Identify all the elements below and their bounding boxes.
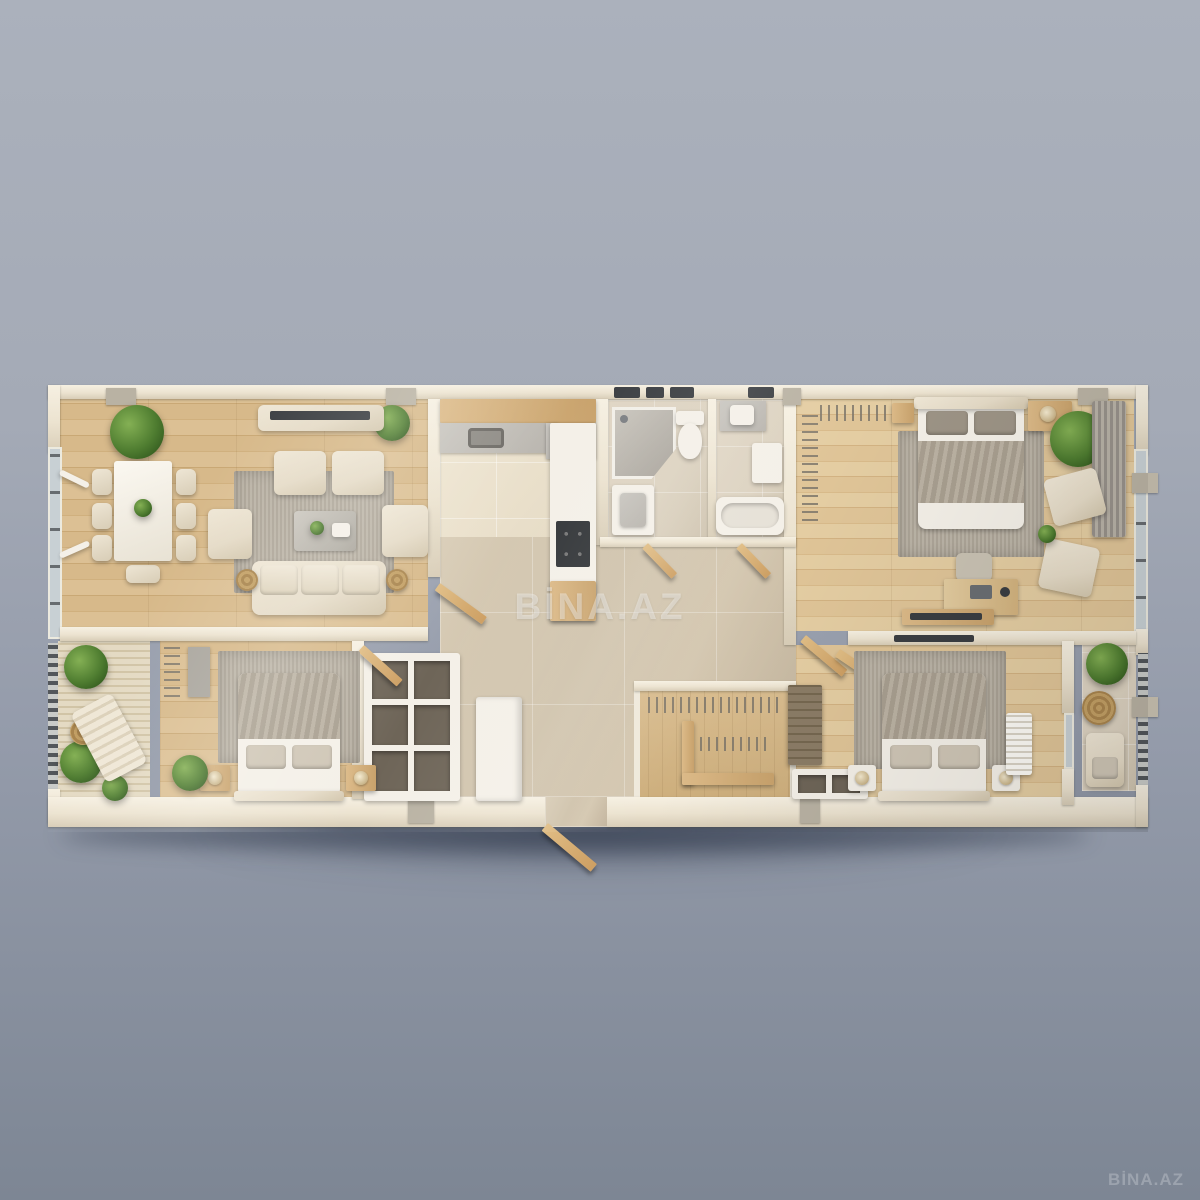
bed-pillow	[974, 411, 1016, 435]
shelf-cubby	[372, 751, 408, 791]
toilet-bowl	[678, 423, 702, 459]
hall-wardrobe	[476, 697, 522, 801]
balcony-plant	[1086, 643, 1128, 685]
wc-window	[748, 387, 774, 398]
tv-screen	[910, 613, 982, 620]
tv-screen	[270, 411, 370, 420]
balcony-round-table	[1082, 691, 1116, 725]
bedside-lamp	[855, 771, 869, 785]
wall-bedrooms-right	[848, 631, 1136, 645]
bed-pillow	[926, 411, 968, 435]
wall-balcony-divider-lower	[1062, 769, 1074, 805]
coffee-table-plant	[310, 521, 324, 535]
sofa-cushion	[301, 565, 339, 595]
armchair	[274, 451, 326, 495]
dining-chair	[92, 535, 112, 561]
nightstand	[892, 403, 914, 423]
shower-head	[620, 415, 628, 423]
closet-unit-horizontal	[682, 773, 774, 785]
bathroom-window	[670, 387, 694, 398]
outer-wall-right-lower	[1136, 785, 1148, 827]
bathroom-window	[646, 387, 664, 398]
shelf-cubby	[798, 775, 826, 793]
sofa-cushion	[260, 565, 298, 595]
dining-chair	[92, 469, 112, 495]
desk-chair	[956, 553, 992, 581]
entrance-threshold	[545, 797, 607, 827]
bed-blanket	[882, 673, 986, 739]
armchair	[1037, 538, 1100, 598]
dining-chair	[92, 503, 112, 529]
bed-headboard	[878, 791, 990, 801]
balcony-left-railing	[48, 643, 58, 793]
pilaster-stub	[408, 799, 434, 823]
mirror-frame	[188, 647, 210, 697]
laptop	[970, 585, 992, 599]
potted-plant	[110, 405, 164, 459]
kitchen-sink	[468, 428, 504, 448]
armchair	[332, 451, 384, 495]
side-table	[236, 569, 258, 591]
cooktop	[556, 521, 590, 567]
tall-wardrobe	[788, 685, 822, 765]
dining-chair	[176, 535, 196, 561]
watermark-corner: BİNA.AZ	[1108, 1170, 1184, 1190]
balcony-door-glass	[1064, 713, 1074, 769]
wall-balcony-divider-upper	[1062, 641, 1074, 713]
pilaster-stub	[1132, 697, 1158, 717]
chair-cushion	[1092, 757, 1118, 779]
clothes-rack	[802, 409, 818, 521]
pilaster-stub	[106, 388, 136, 405]
outer-wall-left-upper	[48, 385, 60, 453]
wall-kitchen-bathroom	[596, 399, 608, 545]
floorplan-render-scene: BİNA.AZ BİNA.AZ	[0, 0, 1200, 1200]
pilaster-stub	[800, 799, 820, 823]
bedside-lamp	[1040, 406, 1056, 422]
wall-living-kitchen	[428, 399, 440, 577]
window-wall-left	[48, 447, 62, 639]
radiator-panel	[1006, 713, 1032, 775]
pilaster-stub	[386, 388, 416, 405]
bathroom-window	[614, 387, 640, 398]
shelf-cubby	[414, 751, 450, 791]
pilaster-stub	[783, 388, 801, 405]
dining-chair	[126, 565, 160, 583]
shelf-cubby	[372, 705, 408, 745]
wc-washbasin	[730, 405, 754, 425]
balcony-plant	[64, 645, 108, 689]
kitchen-upper-cabinets	[440, 399, 596, 423]
wc-cabinet	[752, 443, 782, 483]
desk-lamp	[1000, 587, 1010, 597]
small-plant	[1038, 525, 1056, 543]
bed-pillow	[292, 745, 332, 769]
window-curtain	[1092, 401, 1126, 537]
wall-wc-bedroom	[784, 399, 796, 645]
closet-hanging-rail	[648, 697, 778, 713]
bed-pillow	[938, 745, 980, 769]
bed-pillow	[890, 745, 932, 769]
sofa-cushion	[342, 565, 380, 595]
wall-living-bedroomleft	[60, 627, 428, 641]
armchair	[208, 509, 252, 559]
outer-wall-right-upper	[1136, 385, 1148, 455]
closet-hanging-rail	[700, 737, 770, 751]
table-centerpiece-plant	[134, 499, 152, 517]
clothes-rack	[164, 647, 180, 697]
wall-closet-top	[634, 681, 796, 691]
shelf-cubby	[414, 661, 450, 699]
wall-tv	[894, 635, 974, 642]
dining-chair	[176, 503, 196, 529]
wall-bathroom-wc	[708, 399, 716, 539]
bedside-lamp	[354, 771, 368, 785]
watermark-center: BİNA.AZ	[514, 586, 685, 628]
side-table	[386, 569, 408, 591]
bed-pillow	[246, 745, 286, 769]
bedside-lamp	[208, 771, 222, 785]
bed-headboard	[234, 791, 344, 801]
coffee-table-books	[332, 523, 350, 537]
pilaster-stub	[1132, 473, 1158, 493]
potted-plant	[172, 755, 208, 791]
outer-wall-bottom-left	[48, 797, 545, 827]
armchair	[382, 505, 428, 557]
bed-headboard	[914, 397, 1028, 409]
bed-blanket	[918, 441, 1024, 503]
bed-blanket	[238, 673, 340, 739]
dining-chair	[176, 469, 196, 495]
wall-bathroom-hall	[600, 537, 796, 547]
bathroom-sink-basin	[620, 493, 646, 527]
balcony-right-railing	[1138, 653, 1148, 789]
outer-wall-right-mid	[1136, 629, 1148, 655]
shelf-cubby	[414, 705, 450, 745]
clothes-rack	[820, 405, 892, 421]
bathtub	[716, 497, 784, 535]
